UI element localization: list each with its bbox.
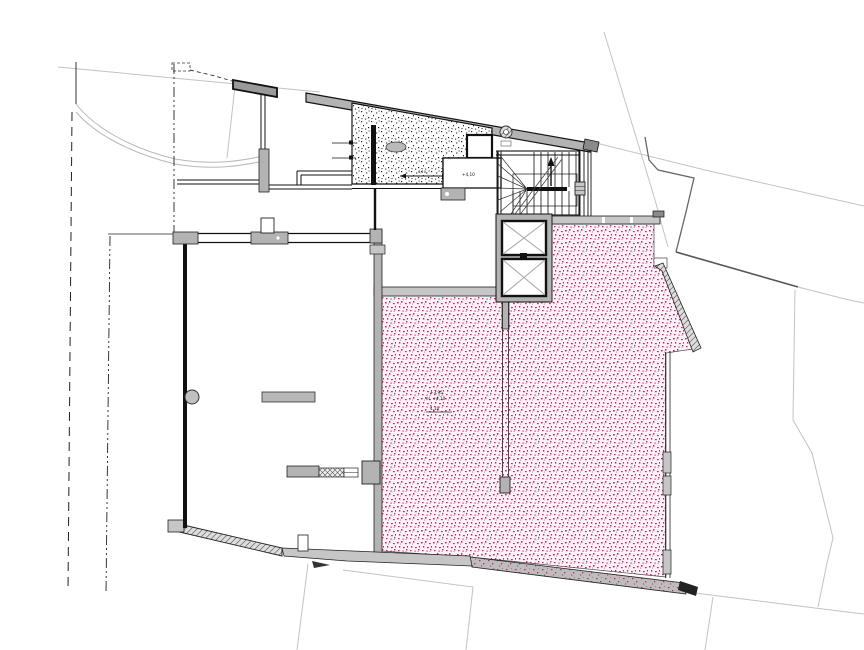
upper-wall-v1 [261,95,265,150]
site-line-se [687,592,864,614]
upper-wall-h1 [177,180,261,184]
site-line-east-tail [798,287,864,303]
south-partition-wall [287,461,380,484]
site-line-nw-link [227,86,235,158]
site-line-se-vert [705,597,713,650]
north-wall-pier-1 [173,232,198,244]
path-dashed-link [190,70,232,81]
gate-dashed-box [172,63,190,71]
equipment-symbol [386,142,406,152]
stair-north-wall [496,151,580,155]
stair-winders [498,153,527,214]
retaining-wall-cap [168,520,184,532]
upper-wall-pier [259,149,269,192]
elevator-shaft-2 [502,259,546,296]
gravel-room-bottom-wall [352,184,443,189]
access-path-curves [76,104,263,167]
east-band-cap [653,211,664,217]
site-line-top-right [588,141,864,206]
upper-wall-h3 [297,171,352,175]
room-door-column [185,390,199,404]
elevator-block [496,214,552,302]
setback-dashdot-line-1 [106,236,110,594]
gravel-room-divider [371,125,376,185]
north-wall-pier-2 [251,232,288,244]
drain-symbol [500,126,512,146]
west-terrace-wall [374,230,382,553]
upper-rooms [177,95,352,192]
site-line-south-1 [297,564,308,650]
north-wall-pier-3 [370,229,382,243]
south-wall-stub [298,535,308,551]
interior-pier [262,392,315,402]
upper-wall-h2 [269,185,352,189]
stair-treads-upper [534,152,576,187]
terrace-label-line1: +3,95 [430,390,443,395]
shaft-separator [520,253,527,259]
east-top-band [545,211,664,224]
top-wall-block [233,80,277,97]
site-line-east-boundary [793,290,833,607]
ne-site-wall [645,137,798,287]
terrace-label-line3: 4,10 [430,406,440,411]
machine-room [467,135,492,158]
duct-symbol [575,182,585,195]
upper-wall-v2 [297,171,301,185]
floor-plan-svg: +3,95 el. +4,10 4,10 [0,0,864,650]
landing-room: +4,10 [441,158,501,200]
property-limit-lines [68,64,180,594]
up-arrow-icon [548,157,555,186]
corridor-south-band [374,287,503,296]
room-elevation-label: +4,10 [462,172,475,177]
landing-door-block [441,188,465,200]
path-curve-upper [76,104,263,162]
elevator-shaft-1 [502,221,546,255]
ne-diagonal-wall [676,252,798,287]
south-band-tip [312,561,330,568]
terrace-label-line2: el. +4,10 [426,396,446,401]
site-line-south-2 [343,570,473,650]
west-wall-tab [370,245,385,254]
path-curve-lower [76,112,263,167]
ground-room [173,218,382,528]
floor-plan-canvas: +3,95 el. +4,10 4,10 [0,0,864,650]
property-dashed-line [68,112,72,592]
dim-arrow-label: 4,10 [418,170,427,174]
west-thick-wall [183,242,187,528]
north-wall-stub [261,218,274,233]
